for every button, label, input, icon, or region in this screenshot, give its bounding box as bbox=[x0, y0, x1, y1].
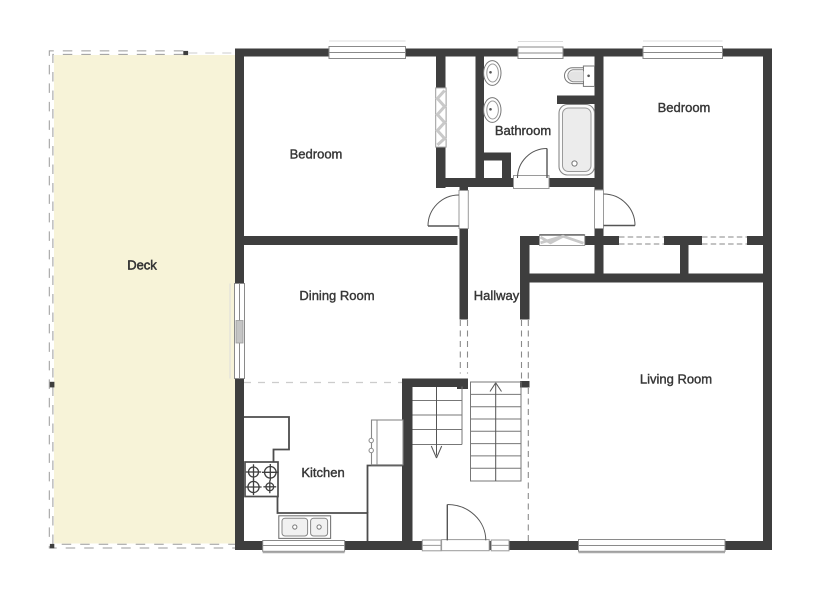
svg-text:Deck: Deck bbox=[127, 257, 157, 272]
svg-text:Bedroom: Bedroom bbox=[290, 147, 343, 162]
svg-text:Bathroom: Bathroom bbox=[495, 123, 551, 138]
svg-text:Living Room: Living Room bbox=[640, 372, 712, 387]
svg-text:Bedroom: Bedroom bbox=[658, 100, 711, 115]
svg-text:Hallway: Hallway bbox=[474, 288, 520, 303]
svg-text:Kitchen: Kitchen bbox=[301, 465, 344, 480]
svg-text:Dining Room: Dining Room bbox=[299, 288, 374, 303]
